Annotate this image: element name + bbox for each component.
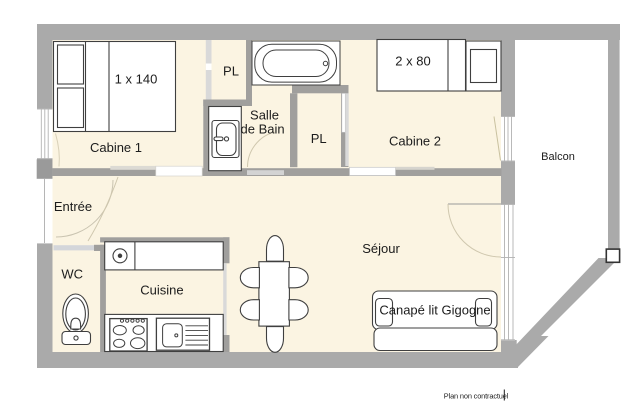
svg-text:PL: PL [311, 131, 327, 146]
svg-text:de Bain: de Bain [241, 122, 285, 137]
svg-text:1 x 140: 1 x 140 [115, 72, 158, 87]
svg-text:PL: PL [223, 64, 239, 79]
svg-text:Cabine 2: Cabine 2 [389, 134, 441, 149]
svg-text:WC: WC [61, 267, 83, 282]
svg-text:Entrée: Entrée [54, 199, 92, 214]
svg-text:Cuisine: Cuisine [140, 283, 183, 298]
svg-text:Cabine 1: Cabine 1 [90, 140, 142, 155]
svg-text:Salle: Salle [250, 107, 279, 122]
svg-text:Canapé lit Gigogne: Canapé lit Gigogne [379, 303, 490, 318]
svg-text:Balcon: Balcon [541, 151, 575, 163]
svg-text:Séjour: Séjour [362, 241, 400, 256]
svg-text:Plan non contractuel: Plan non contractuel [444, 392, 509, 401]
svg-text:2 x 80: 2 x 80 [395, 54, 430, 69]
